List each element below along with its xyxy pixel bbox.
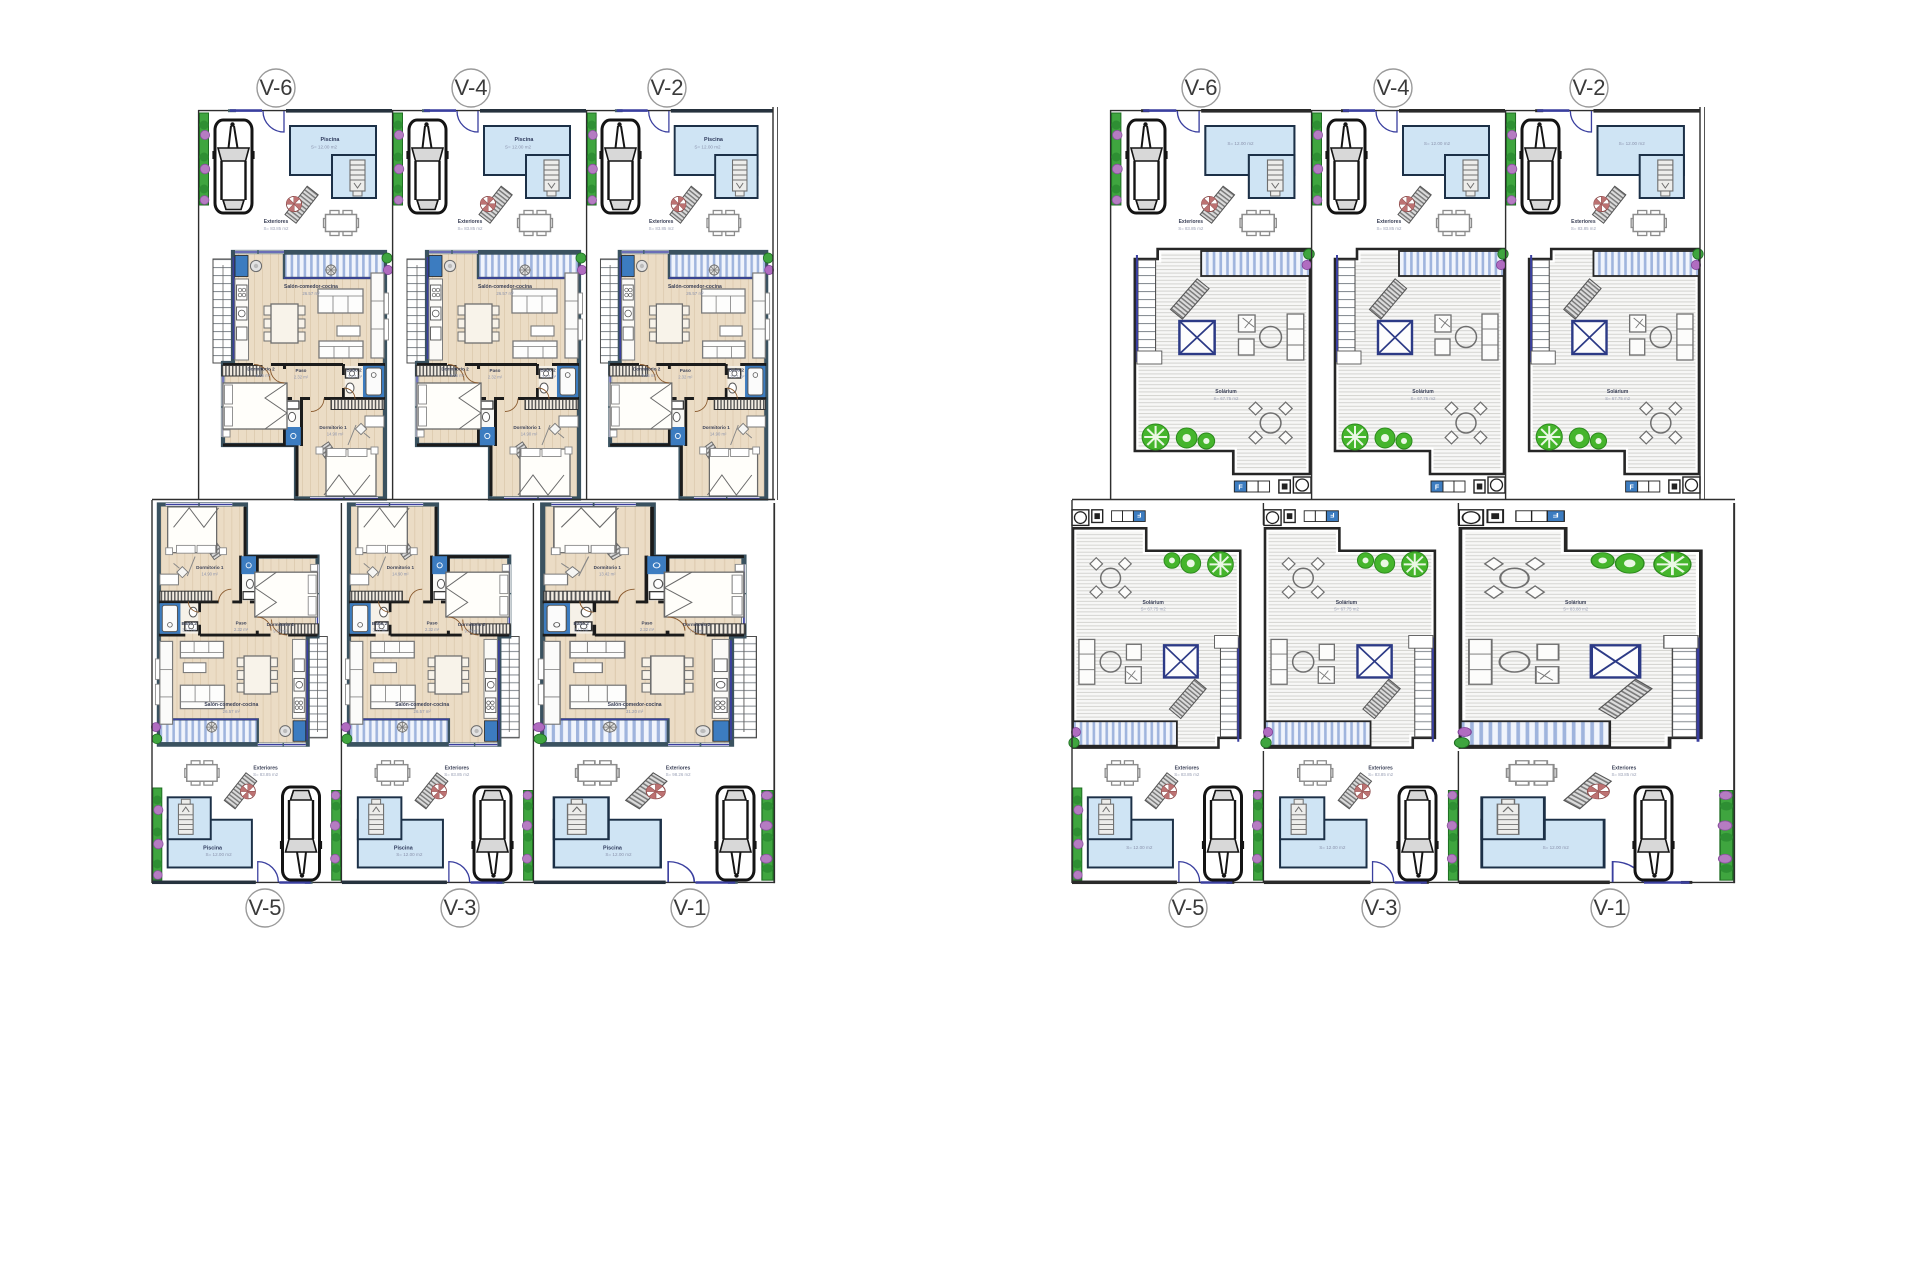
svg-text:3.17 m²: 3.17 m² (182, 627, 197, 632)
svg-text:S= 83.85 m2: S= 83.85 m2 (1368, 772, 1394, 777)
svg-text:Baño 2: Baño 2 (346, 368, 362, 373)
svg-text:S= 98.26 m2: S= 98.26 m2 (666, 772, 692, 777)
svg-text:V-2: V-2 (650, 75, 683, 100)
svg-text:2.32 m²: 2.32 m² (488, 375, 503, 380)
svg-text:Solárium: Solárium (1336, 600, 1358, 606)
svg-text:S= 67.75 m2: S= 67.75 m2 (1334, 607, 1360, 612)
svg-text:Dormitorio 2: Dormitorio 2 (633, 367, 661, 372)
svg-text:9.95 m²: 9.95 m² (642, 373, 657, 378)
svg-text:Exteriores: Exteriores (1179, 219, 1204, 225)
svg-text:2.32 m²: 2.32 m² (640, 627, 655, 632)
svg-text:Paso: Paso (680, 368, 691, 373)
svg-text:2.32 m²: 2.32 m² (678, 375, 693, 380)
svg-text:Salón-comedor-cocina: Salón-comedor-cocina (668, 284, 722, 290)
svg-text:Paso: Paso (296, 368, 307, 373)
svg-text:Salón-comedor-cocina: Salón-comedor-cocina (204, 702, 258, 708)
svg-text:Dormitorio 1: Dormitorio 1 (196, 565, 224, 570)
svg-text:3.17 m²: 3.17 m² (542, 374, 557, 379)
svg-text:Dormitorio 1: Dormitorio 1 (513, 425, 541, 430)
svg-text:Piscina: Piscina (515, 137, 535, 143)
svg-text:Exteriores: Exteriores (1377, 219, 1402, 225)
svg-text:Paso: Paso (490, 368, 501, 373)
svg-text:S= 12.00 m2: S= 12.00 m2 (1543, 845, 1570, 850)
svg-text:S= 83.85 m2: S= 83.85 m2 (1611, 772, 1637, 777)
svg-text:Salón-comedor-cocina: Salón-comedor-cocina (478, 284, 532, 290)
svg-text:Dormitorio 2: Dormitorio 2 (683, 622, 711, 627)
svg-text:V-5: V-5 (248, 895, 281, 920)
svg-text:26.57 m²: 26.57 m² (302, 291, 320, 296)
svg-text:V-3: V-3 (443, 895, 476, 920)
svg-text:Dormitorio 2: Dormitorio 2 (247, 367, 275, 372)
svg-text:Exteriores: Exteriores (1368, 766, 1393, 772)
svg-text:Dormitorio 2: Dormitorio 2 (267, 622, 295, 627)
svg-text:Baño 2: Baño 2 (729, 368, 745, 373)
svg-text:13.42 m²: 13.42 m² (599, 571, 616, 576)
svg-text:S= 67.75 m2: S= 67.75 m2 (1213, 396, 1239, 401)
svg-text:3.17 m²: 3.17 m² (574, 627, 589, 632)
svg-text:Solárium: Solárium (1607, 389, 1629, 395)
svg-text:V-4: V-4 (454, 75, 487, 100)
svg-text:V-1: V-1 (673, 895, 706, 920)
svg-text:Salón-comedor-cocina: Salón-comedor-cocina (284, 284, 338, 290)
svg-text:14.90 m²: 14.90 m² (392, 571, 409, 576)
svg-text:2.32 m²: 2.32 m² (294, 375, 309, 380)
svg-text:V-6: V-6 (1184, 75, 1217, 100)
svg-text:S= 83.85 m2: S= 83.85 m2 (1571, 226, 1597, 231)
svg-text:Paso: Paso (427, 620, 438, 625)
svg-text:S= 12.00 m2: S= 12.00 m2 (1227, 141, 1254, 146)
svg-text:Baño 2: Baño 2 (182, 621, 198, 626)
svg-text:Baño 2: Baño 2 (372, 621, 388, 626)
svg-text:9.95 m²: 9.95 m² (450, 373, 465, 378)
svg-text:S= 67.75 m2: S= 67.75 m2 (1141, 607, 1167, 612)
svg-text:Piscina: Piscina (394, 846, 414, 852)
svg-text:Exteriores: Exteriores (264, 219, 289, 225)
svg-text:S= 12.00 m2: S= 12.00 m2 (311, 145, 338, 150)
svg-text:Exteriores: Exteriores (253, 766, 278, 772)
svg-text:S= 83.85 m2: S= 83.85 m2 (1178, 226, 1204, 231)
svg-text:Solárium: Solárium (1142, 600, 1164, 606)
svg-text:S= 67.75 m2: S= 67.75 m2 (1605, 396, 1631, 401)
svg-text:Paso: Paso (236, 620, 247, 625)
svg-text:9.95 m²: 9.95 m² (464, 628, 479, 633)
svg-text:S= 83.85 m2: S= 83.85 m2 (457, 226, 483, 231)
svg-text:S= 12.00 m2: S= 12.00 m2 (1126, 845, 1153, 850)
svg-text:Solárium: Solárium (1215, 389, 1237, 395)
svg-text:S= 12.00 m2: S= 12.00 m2 (1424, 141, 1451, 146)
svg-text:14.90 m²: 14.90 m² (521, 432, 538, 437)
svg-text:Piscina: Piscina (321, 137, 341, 143)
svg-text:3.17 m²: 3.17 m² (372, 627, 387, 632)
svg-text:31.20 m²: 31.20 m² (626, 709, 644, 714)
svg-text:Salón-comedor-cocina: Salón-comedor-cocina (395, 702, 449, 708)
svg-text:V-5: V-5 (1171, 895, 1204, 920)
svg-text:Dormitorio 2: Dormitorio 2 (441, 367, 469, 372)
svg-text:S= 12.00 m2: S= 12.00 m2 (396, 852, 423, 857)
svg-text:26.57 m²: 26.57 m² (686, 291, 704, 296)
svg-text:Exteriores: Exteriores (649, 219, 674, 225)
svg-text:Paso: Paso (642, 620, 653, 625)
svg-text:Exteriores: Exteriores (666, 766, 691, 772)
svg-text:Solárium: Solárium (1412, 389, 1434, 395)
svg-text:Exteriores: Exteriores (1612, 766, 1637, 772)
svg-text:Piscina: Piscina (203, 846, 223, 852)
svg-text:V-1: V-1 (1593, 895, 1626, 920)
svg-text:14.90 m²: 14.90 m² (202, 571, 219, 576)
svg-text:2.32 m²: 2.32 m² (425, 627, 440, 632)
svg-text:Piscina: Piscina (603, 846, 623, 852)
svg-text:Salón-comedor-cocina: Salón-comedor-cocina (608, 702, 662, 708)
svg-text:14.90 m²: 14.90 m² (710, 432, 727, 437)
svg-text:S= 83.85 m2: S= 83.85 m2 (649, 226, 675, 231)
svg-text:26.57 m²: 26.57 m² (414, 709, 432, 714)
svg-text:Dormitorio 1: Dormitorio 1 (594, 565, 622, 570)
svg-text:S= 12.00 m2: S= 12.00 m2 (505, 145, 532, 150)
svg-text:14.90 m²: 14.90 m² (327, 432, 344, 437)
svg-text:Exteriores: Exteriores (445, 766, 470, 772)
svg-text:26.57 m²: 26.57 m² (223, 709, 241, 714)
svg-text:Dormitorio 1: Dormitorio 1 (387, 565, 415, 570)
svg-text:7.91 m²: 7.91 m² (690, 628, 705, 633)
svg-text:Exteriores: Exteriores (1571, 219, 1596, 225)
svg-text:V-3: V-3 (1364, 895, 1397, 920)
svg-text:S= 83.85 m2: S= 83.85 m2 (263, 226, 289, 231)
svg-text:S= 12.00 m2: S= 12.00 m2 (1619, 141, 1646, 146)
svg-text:S= 67.75 m2: S= 67.75 m2 (1410, 396, 1436, 401)
svg-text:S= 12.00 m2: S= 12.00 m2 (605, 852, 632, 857)
svg-text:Baño 2: Baño 2 (574, 621, 590, 626)
svg-text:S= 83.85 m2: S= 83.85 m2 (444, 772, 470, 777)
svg-text:S= 12.00 m2: S= 12.00 m2 (1319, 845, 1346, 850)
svg-text:S= 83.85 m2: S= 83.85 m2 (253, 772, 279, 777)
svg-text:Piscina: Piscina (704, 137, 724, 143)
svg-text:26.57 m²: 26.57 m² (496, 291, 514, 296)
svg-text:Exteriores: Exteriores (1175, 766, 1200, 772)
svg-text:V-4: V-4 (1376, 75, 1409, 100)
svg-text:Exteriores: Exteriores (458, 219, 483, 225)
svg-text:S= 12.00 m2: S= 12.00 m2 (206, 852, 233, 857)
svg-text:2.32 m²: 2.32 m² (234, 627, 249, 632)
svg-text:Dormitorio 1: Dormitorio 1 (702, 425, 730, 430)
svg-text:9.95 m²: 9.95 m² (256, 373, 271, 378)
svg-text:3.17 m²: 3.17 m² (348, 374, 363, 379)
svg-text:S= 12.00 m2: S= 12.00 m2 (694, 145, 721, 150)
svg-text:9.95 m²: 9.95 m² (273, 628, 288, 633)
svg-text:Dormitorio 2: Dormitorio 2 (458, 622, 486, 627)
svg-text:Solárium: Solárium (1565, 600, 1587, 606)
svg-text:3.17 m²: 3.17 m² (730, 374, 745, 379)
svg-text:V-2: V-2 (1572, 75, 1605, 100)
svg-text:V-6: V-6 (259, 75, 292, 100)
svg-text:Dormitorio 1: Dormitorio 1 (319, 425, 347, 430)
svg-text:S= 83.85 m2: S= 83.85 m2 (1174, 772, 1200, 777)
svg-text:Baño 2: Baño 2 (540, 368, 556, 373)
svg-text:S= 83.88 m2: S= 83.88 m2 (1563, 607, 1589, 612)
svg-text:S= 83.85 m2: S= 83.85 m2 (1376, 226, 1402, 231)
